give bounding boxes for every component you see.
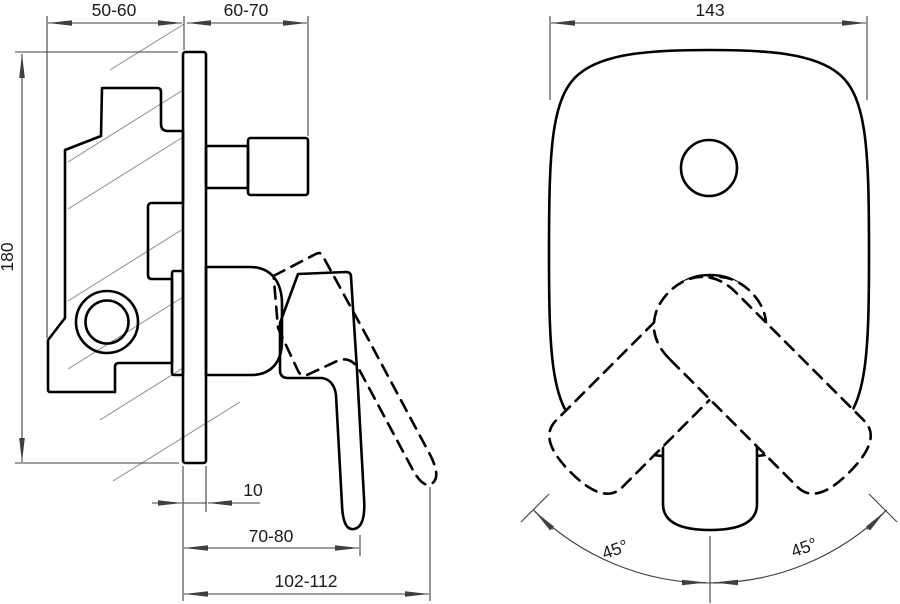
wall-plate-side [183, 52, 206, 463]
dim-label-swing-left: 45° [599, 535, 631, 563]
lever-side [280, 272, 364, 529]
extension-line-swing-left [521, 494, 549, 522]
technical-drawing: 50-60 60-70 180 10 70-80 102-112 [0, 0, 900, 604]
side-extension-lines [15, 16, 430, 601]
dim-label-total-reach: 102-112 [275, 571, 338, 591]
dim-label-embed-depth: 50-60 [92, 0, 137, 20]
wall-hatching [68, 24, 240, 481]
diverter-knob-side [248, 138, 308, 195]
hatch-line [68, 137, 183, 209]
arrow-stub [535, 512, 553, 530]
supply-pipe-circle-inner [86, 301, 129, 344]
hatch-line [113, 402, 240, 481]
dim-label-swing-right: 45° [788, 533, 820, 561]
diverter-button-front [681, 140, 737, 196]
dim-label-protrusion: 60-70 [224, 0, 269, 20]
hatch-line [68, 229, 183, 301]
dim-label-lever-reach: 70-80 [249, 526, 294, 546]
hatch-line [100, 368, 183, 420]
dim-label-width: 143 [695, 0, 724, 20]
hatch-line [110, 24, 184, 70]
concealed-valve-body [48, 88, 183, 392]
side-dimension-lines [22, 23, 429, 594]
side-view: 50-60 60-70 180 10 70-80 102-112 [0, 0, 441, 601]
extension-line-swing-right [869, 494, 897, 522]
cartridge-flange [172, 271, 183, 375]
dim-label-plate: 10 [243, 480, 263, 500]
arrow-stub [867, 512, 885, 530]
diverter-stem-side [206, 146, 248, 188]
hatch-line [68, 90, 183, 162]
dim-label-height: 180 [0, 242, 17, 271]
lever-hub-side [206, 267, 282, 375]
front-view: 143 45° 45° [521, 0, 897, 603]
drawing-canvas: 50-60 60-70 180 10 70-80 102-112 [0, 0, 900, 604]
lever-side-dashed [256, 246, 441, 515]
